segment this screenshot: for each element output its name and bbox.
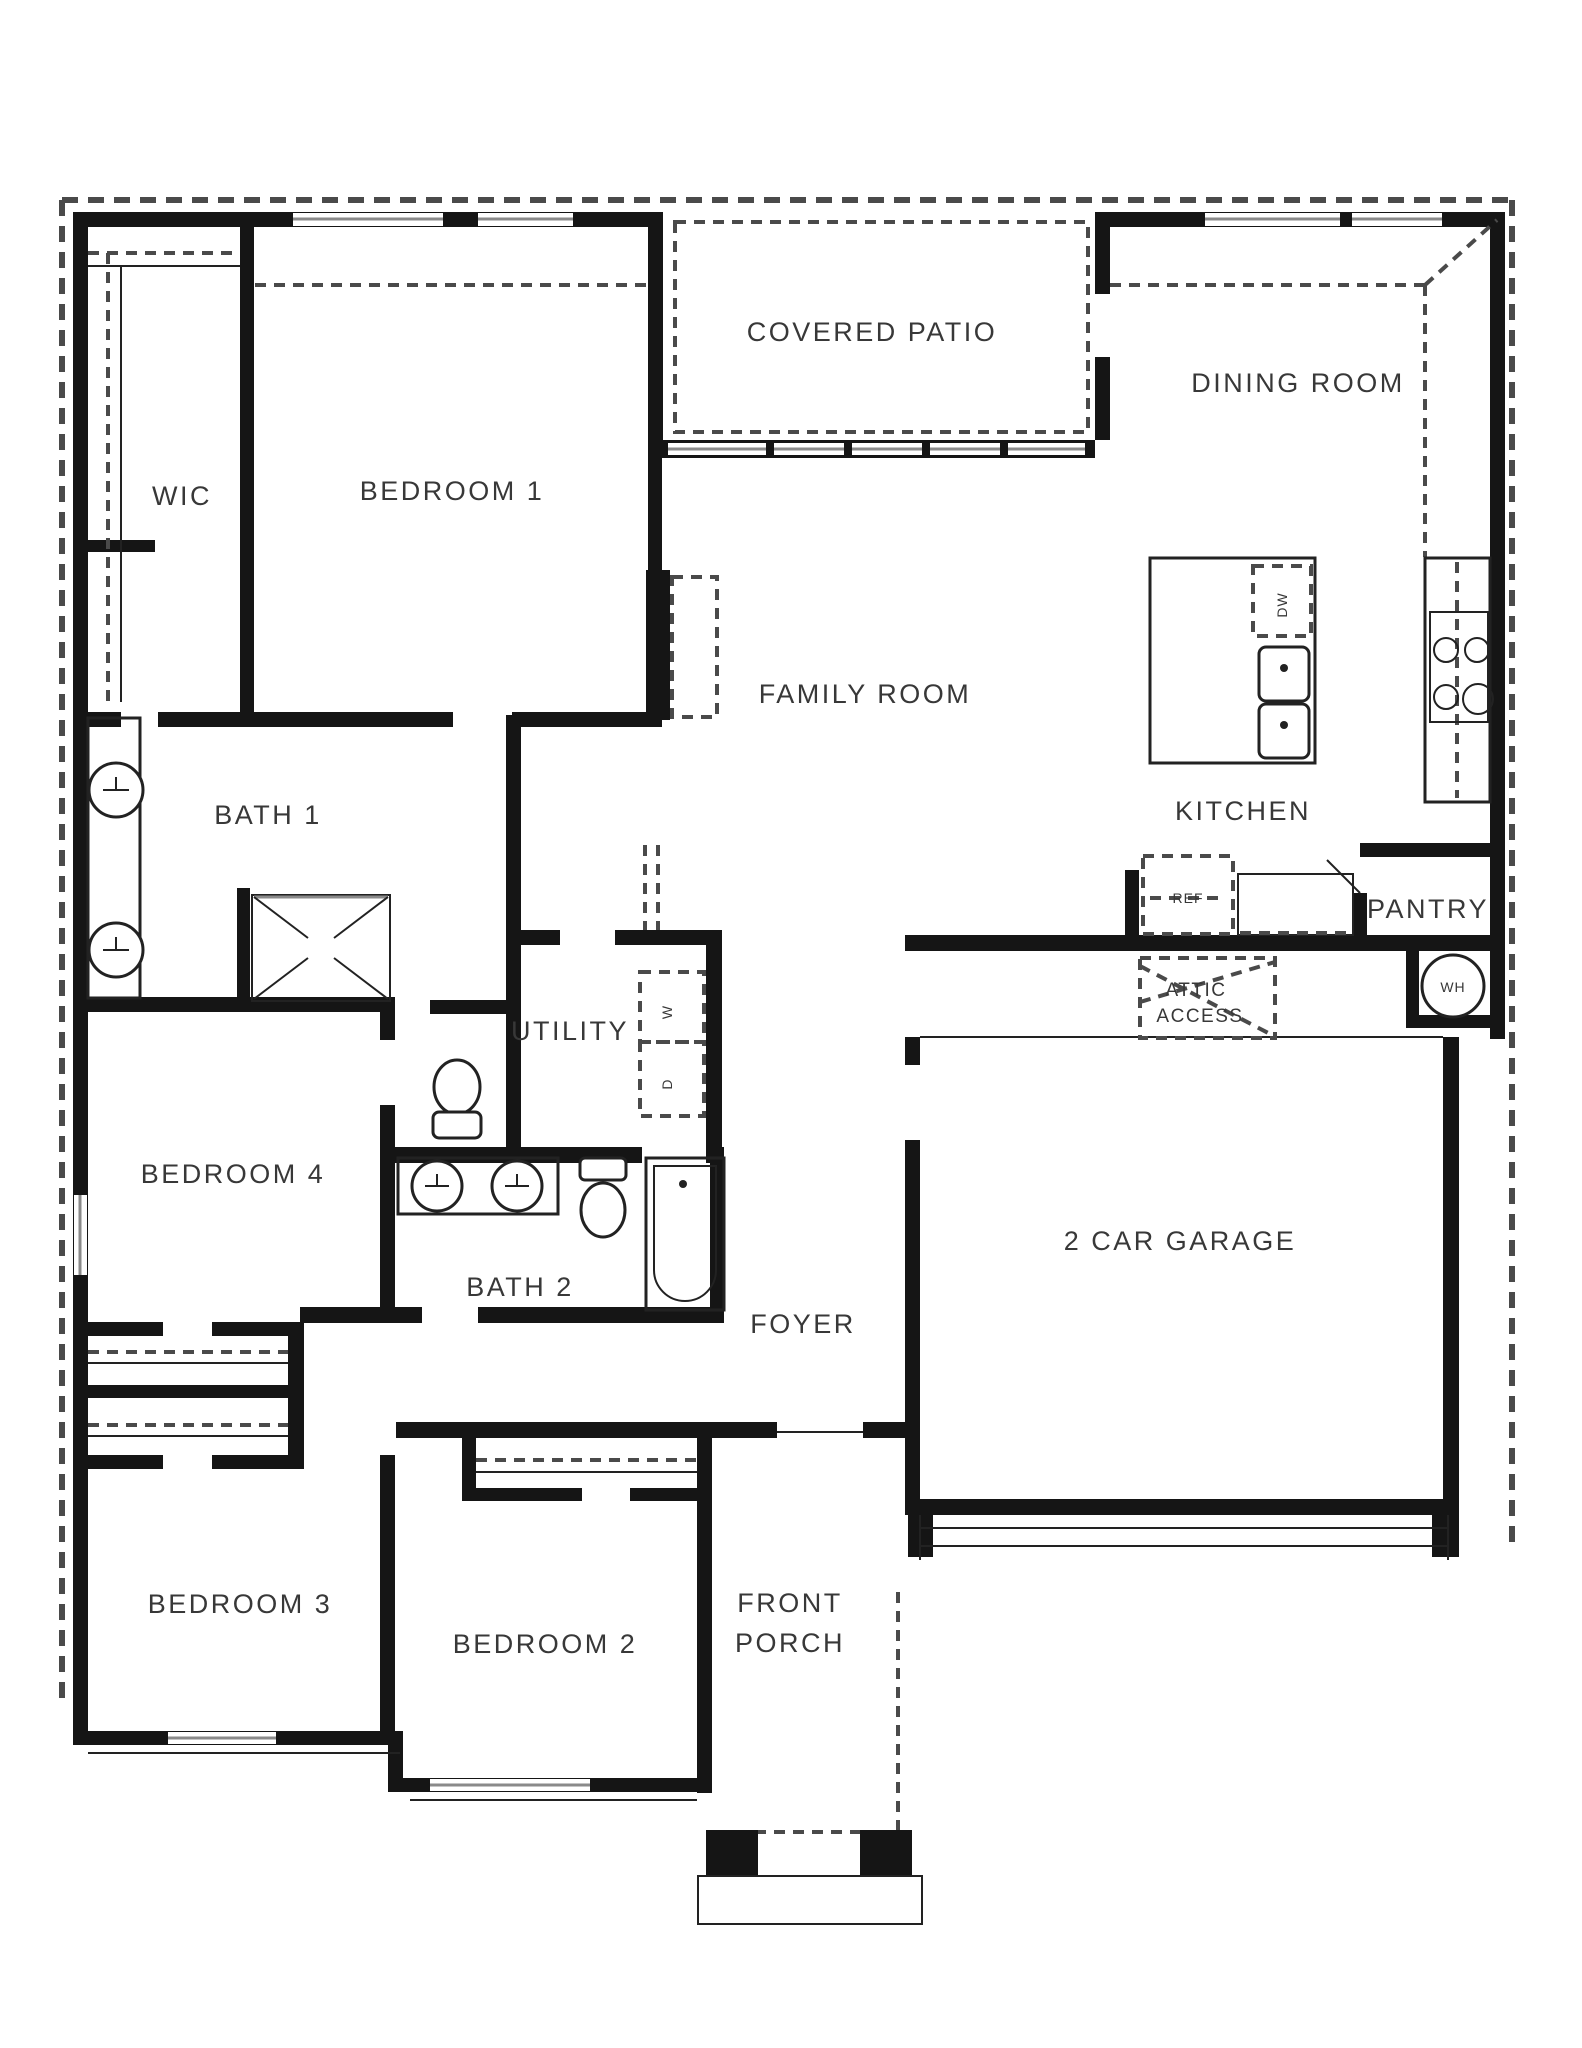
bath2-sink xyxy=(492,1161,542,1211)
label-bedroom2: BEDROOM 2 xyxy=(453,1629,638,1659)
label-dining-room: DINING ROOM xyxy=(1191,368,1405,398)
cooktop-burners xyxy=(1434,638,1493,714)
media-niche xyxy=(672,577,717,717)
label-utility: UTILITY xyxy=(511,1016,629,1046)
label-bath2: BATH 2 xyxy=(466,1272,574,1302)
label-washer: W xyxy=(659,1005,675,1019)
label-attic-2: ACCESS xyxy=(1156,1006,1243,1027)
room-labels: WIC BEDROOM 1 COVERED PATIO DINING ROOM … xyxy=(141,317,1489,1659)
toilet xyxy=(580,1158,626,1237)
label-family-room: FAMILY ROOM xyxy=(759,679,972,709)
bath1-sink xyxy=(89,763,143,817)
label-front-porch-1: FRONT xyxy=(737,1588,842,1618)
label-front-porch-2: PORCH xyxy=(735,1628,845,1658)
kitchen-counter-2 xyxy=(1238,874,1353,935)
label-refrigerator: REF xyxy=(1173,890,1204,906)
label-water-heater: WH xyxy=(1440,979,1465,995)
bath1-sink xyxy=(89,923,143,977)
bath2-sink xyxy=(412,1161,462,1211)
porch-step xyxy=(698,1876,922,1924)
label-kitchen: KITCHEN xyxy=(1175,796,1311,826)
label-dishwasher: DW xyxy=(1274,592,1290,617)
label-covered-patio: COVERED PATIO xyxy=(747,317,998,347)
floor-plan-sheet: WIC BEDROOM 1 COVERED PATIO DINING ROOM … xyxy=(0,0,1582,2048)
label-dryer: D xyxy=(659,1078,675,1089)
floor-plan-drawing: WIC BEDROOM 1 COVERED PATIO DINING ROOM … xyxy=(0,0,1582,2048)
walls xyxy=(73,212,1505,1876)
label-garage: 2 CAR GARAGE xyxy=(1064,1226,1297,1256)
shower xyxy=(252,895,390,1001)
label-bedroom4: BEDROOM 4 xyxy=(141,1159,326,1189)
label-bedroom3: BEDROOM 3 xyxy=(148,1589,333,1619)
label-bedroom1: BEDROOM 1 xyxy=(360,476,545,506)
kitchen-sink xyxy=(1259,647,1309,758)
label-pantry: PANTRY xyxy=(1367,894,1489,924)
label-foyer: FOYER xyxy=(750,1309,856,1339)
pantry-door-leaf xyxy=(1327,860,1360,893)
label-attic-1: ATTIC xyxy=(1166,980,1227,1001)
label-wic: WIC xyxy=(152,481,212,511)
label-bath1: BATH 1 xyxy=(214,800,322,830)
toilet xyxy=(433,1060,481,1138)
ceiling-dashed-lines xyxy=(88,220,1497,1472)
